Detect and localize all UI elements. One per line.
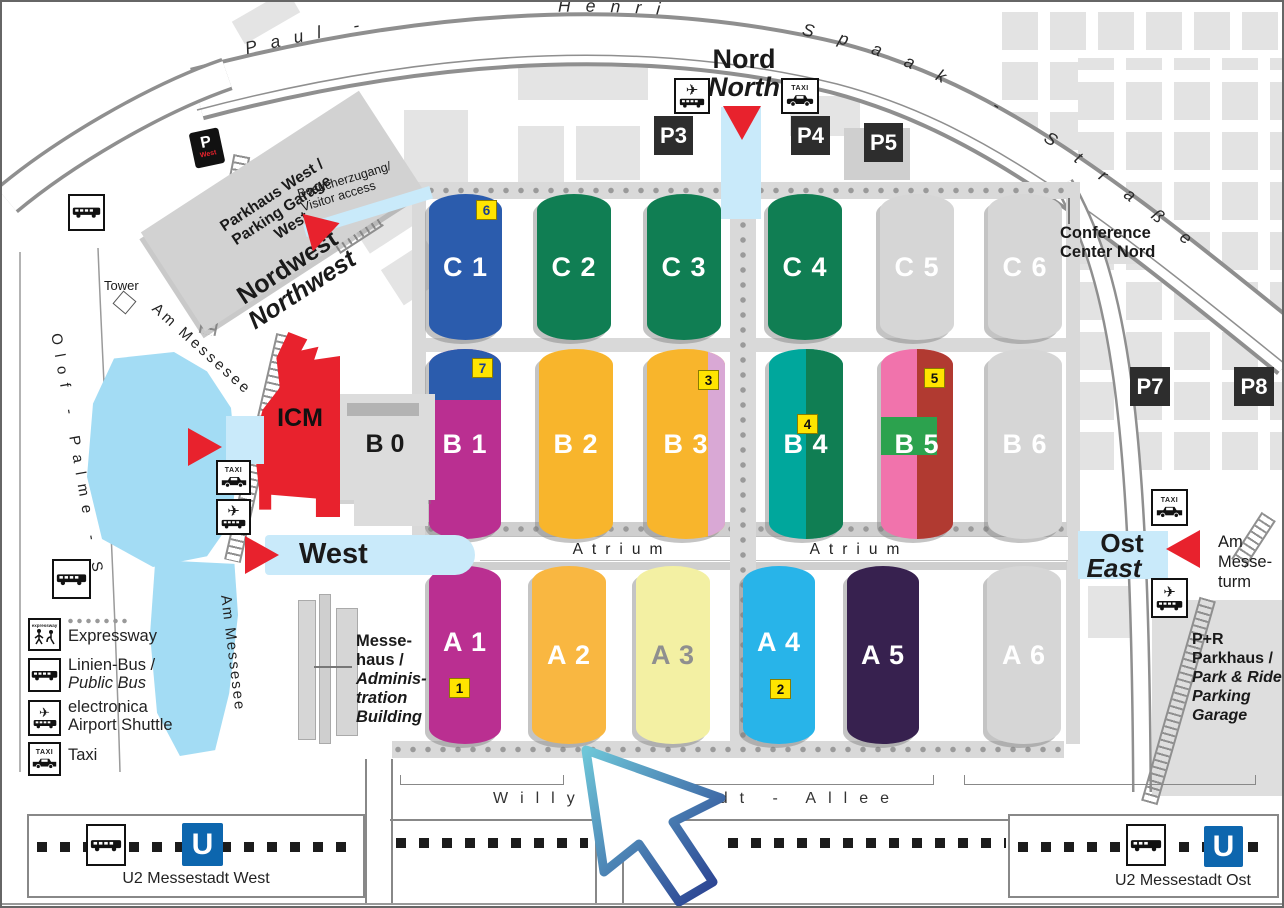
hall-label: A 5: [861, 640, 905, 671]
pr-garage-label: P+R Parkhaus / Park & Ride Parking Garag…: [1192, 630, 1282, 725]
parking-P8[interactable]: P8: [1234, 367, 1274, 406]
airport-shuttle-icon: ✈: [674, 78, 710, 114]
parking-label: P5: [870, 130, 897, 156]
u2-messestadt-west-label: U2 Messestadt West: [29, 870, 363, 888]
road-line: [365, 759, 367, 904]
bus-stop-icon: [68, 194, 105, 231]
parking-label: P7: [1137, 374, 1164, 400]
hall-label: B 3: [663, 429, 708, 460]
badge-number: 4: [804, 417, 812, 432]
ubahn-letter: U: [1213, 830, 1235, 864]
poi-badge-6[interactable]: 6: [476, 200, 497, 220]
poi-badge-4[interactable]: 4: [797, 414, 818, 434]
hall-label: C 1: [443, 252, 488, 283]
taxi-icon: TAXI: [28, 742, 61, 776]
hall-label: A 3: [651, 640, 695, 671]
ubahn-letter: U: [192, 828, 214, 862]
am-messeturm-label: Am Messe- turm: [1218, 532, 1272, 592]
building-B0-label: B 0: [335, 430, 435, 459]
hall-B6[interactable]: B 6: [988, 349, 1062, 539]
badge-number: 6: [483, 203, 491, 218]
hall-label: A 1: [443, 627, 487, 658]
entrance-west-label: West: [299, 538, 368, 571]
bus-stop-icon: [86, 824, 126, 866]
service-corridor-east-edge: [1066, 182, 1080, 744]
hall-label: C 3: [661, 252, 706, 283]
road-line: [391, 759, 393, 904]
icm-entrance-walkway: [226, 416, 264, 464]
messehaus-building: [298, 600, 316, 740]
hall-A1[interactable]: A 1: [429, 566, 501, 744]
parking-P7[interactable]: P7: [1130, 367, 1170, 406]
messe-site-map: Paul - Henri Spaak - Straße Atrium Atriu…: [0, 0, 1284, 908]
hall-A4[interactable]: A 4: [743, 566, 815, 744]
badge-number: 5: [931, 371, 939, 386]
parking-label: P4: [797, 123, 824, 149]
parking-P4[interactable]: P4: [791, 116, 830, 155]
hall-label: C 6: [1002, 252, 1047, 283]
parking-label: P3: [660, 123, 687, 149]
hall-C4[interactable]: C 4: [768, 194, 842, 340]
legend-expressway-label: Expressway: [68, 628, 157, 646]
building-ICM-label: ICM: [264, 404, 336, 433]
west-entrance-arrow-icon[interactable]: [245, 536, 279, 574]
taxi-icon: TAXI: [1151, 489, 1188, 526]
badge-number: 1: [456, 681, 464, 696]
conference-leader-line: [1068, 198, 1070, 224]
road-curb: [400, 775, 564, 785]
legend-public-bus-label: Linien-Bus / Public Bus: [68, 657, 155, 692]
public-bus-icon: [28, 658, 61, 692]
ubahn-logo[interactable]: U: [1204, 826, 1243, 867]
road-curb: [964, 775, 1256, 785]
parking-label: P8: [1241, 374, 1268, 400]
hall-label: A 4: [757, 627, 801, 658]
entrance-nord-label: Nord: [692, 44, 796, 75]
bus-stop-icon: [52, 559, 91, 599]
poi-badge-7[interactable]: 7: [472, 358, 493, 378]
hall-label: C 2: [551, 252, 596, 283]
airport-shuttle-icon: ✈: [28, 700, 61, 736]
messehaus-building: [319, 594, 331, 744]
messehaus-label: Messe- haus / Adminis- tration Building: [356, 632, 427, 727]
airport-shuttle-icon: ✈: [216, 499, 251, 535]
parking-P5[interactable]: P5: [864, 123, 903, 162]
hall-C6[interactable]: C 6: [988, 194, 1062, 340]
hall-C5[interactable]: C 5: [880, 194, 954, 340]
hall-A2[interactable]: A 2: [532, 566, 606, 744]
u2-line-dashes: [728, 838, 1006, 848]
poi-badge-2[interactable]: 2: [770, 679, 791, 699]
ubahn-logo[interactable]: U: [182, 823, 223, 866]
atrium-label-east: Atrium: [774, 541, 944, 559]
ost-entrance-arrow-icon[interactable]: [1166, 530, 1200, 568]
west-entrance-band: [265, 535, 475, 575]
conference-center-label: Conference Center Nord: [1060, 224, 1155, 262]
legend-taxi-label: Taxi: [68, 747, 97, 765]
entrance-east-label: East: [1070, 553, 1158, 584]
hall-C3[interactable]: C 3: [647, 194, 721, 340]
badge-number: 3: [705, 373, 713, 388]
messehaus-leader-line: [314, 666, 352, 668]
hall-label: B 1: [442, 429, 487, 460]
hall-label: A 2: [547, 640, 591, 671]
hall-label: B 6: [1002, 429, 1047, 460]
poi-badge-5[interactable]: 5: [924, 368, 945, 388]
icm-entrance-arrow-icon[interactable]: [188, 428, 222, 466]
hall-label: B 5: [894, 429, 939, 460]
messehaus-building: [336, 608, 358, 736]
hall-C2[interactable]: C 2: [537, 194, 611, 340]
hall-A6[interactable]: A 6: [987, 566, 1061, 744]
tower-label: Tower: [104, 278, 139, 293]
hall-B4[interactable]: B 4: [769, 349, 843, 539]
u2-station-west-box: U U2 Messestadt West: [27, 814, 365, 898]
hall-label: B 2: [553, 429, 598, 460]
building-B0-roof-bar: [347, 403, 419, 416]
u2-messestadt-ost-label: U2 Messestadt Ost: [1010, 872, 1277, 890]
airport-shuttle-icon: ✈: [1151, 578, 1188, 618]
nord-entrance-arrow-icon[interactable]: [723, 106, 761, 140]
poi-badge-1[interactable]: 1: [449, 678, 470, 698]
atrium-label-west: Atrium: [542, 541, 702, 559]
hall-label: C 4: [782, 252, 827, 283]
hall-A3[interactable]: A 3: [636, 566, 710, 744]
poi-badge-3[interactable]: 3: [698, 370, 719, 390]
hall-A5[interactable]: A 5: [847, 566, 919, 744]
cursor-pointer-icon: [558, 742, 748, 908]
taxi-icon: TAXI: [781, 78, 819, 114]
bus-stop-icon: [1126, 824, 1166, 866]
badge-number: 2: [777, 682, 785, 697]
legend-airport-shuttle-label: electronica Airport Shuttle: [68, 699, 173, 734]
expressway-dotted-path: [66, 617, 130, 625]
parking-P3[interactable]: P3: [654, 116, 693, 155]
u2-station-ost-box: U U2 Messestadt Ost: [1008, 814, 1279, 898]
hall-label: A 6: [1002, 640, 1046, 671]
hall-label: C 5: [894, 252, 939, 283]
building-B0-annex: [354, 500, 428, 526]
expressway-icon: expressway: [28, 618, 61, 651]
badge-number: 7: [479, 361, 487, 376]
hall-B2[interactable]: B 2: [539, 349, 613, 539]
